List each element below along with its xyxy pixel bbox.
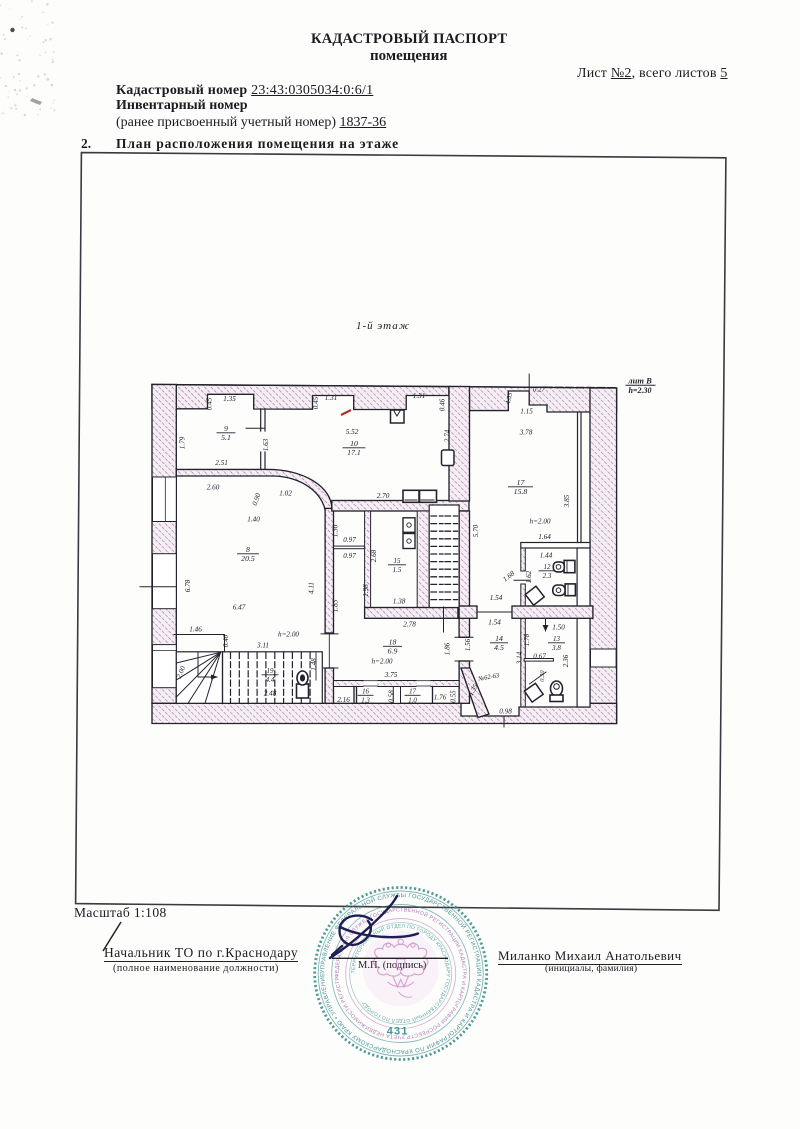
svg-text:h=2.00: h=2.00	[529, 518, 550, 526]
svg-text:0.40: 0.40	[222, 634, 230, 647]
svg-text:1.86: 1.86	[444, 642, 452, 655]
svg-text:2.48: 2.48	[264, 690, 277, 698]
svg-text:h=2.00: h=2.00	[278, 631, 299, 639]
svg-text:12: 12	[544, 563, 552, 571]
svg-text:1.79: 1.79	[179, 436, 187, 449]
svg-text:0.97: 0.97	[343, 552, 356, 560]
svg-text:8: 8	[246, 545, 250, 554]
svg-text:1.54: 1.54	[490, 594, 503, 602]
svg-text:2.68: 2.68	[370, 549, 378, 562]
svg-text:1.35: 1.35	[223, 395, 236, 403]
svg-text:2.60: 2.60	[207, 484, 220, 492]
svg-text:18: 18	[389, 638, 397, 647]
svg-text:17: 17	[517, 478, 526, 487]
svg-text:1.0: 1.0	[408, 698, 417, 705]
svg-text:ФЕДЕРАЛЬНАЯ СЛУЖБА ГОСУДАРСТВЕ: ФЕДЕРАЛЬНАЯ СЛУЖБА ГОСУДАРСТВЕННОЙ РЕГИС…	[0, 0, 467, 1040]
svg-text:1.50: 1.50	[552, 624, 565, 632]
svg-text:6.9: 6.9	[388, 647, 398, 656]
svg-text:1.62: 1.62	[525, 570, 533, 583]
svg-text:1.31: 1.31	[325, 394, 338, 402]
svg-text:1.40: 1.40	[247, 516, 260, 524]
svg-text:4.03: 4.03	[505, 392, 514, 406]
svg-text:1.38: 1.38	[393, 598, 406, 606]
svg-text:9: 9	[224, 424, 228, 433]
svg-text:4.11: 4.11	[308, 582, 316, 594]
svg-text:0.30: 0.30	[539, 670, 546, 682]
svg-text:1.76: 1.76	[434, 694, 447, 702]
svg-text:1.98: 1.98	[362, 584, 370, 597]
svg-text:1.56: 1.56	[464, 638, 472, 651]
svg-text:1.63: 1.63	[262, 438, 270, 451]
svg-text:3.11: 3.11	[256, 642, 269, 650]
svg-text:3.85: 3.85	[563, 494, 571, 508]
svg-text:1.64: 1.64	[538, 533, 551, 541]
svg-text:1.78: 1.78	[523, 633, 531, 646]
svg-text:1.31: 1.31	[413, 392, 426, 400]
svg-text:0.46: 0.46	[439, 398, 447, 411]
svg-text:№62-63: №62-63	[477, 672, 501, 683]
svg-text:3.75: 3.75	[384, 671, 398, 679]
svg-text:1.3: 1.3	[361, 698, 370, 705]
svg-text:17: 17	[409, 689, 416, 696]
svg-text:1.83: 1.83	[332, 599, 340, 612]
svg-text:2.36: 2.36	[562, 654, 570, 667]
svg-text:0.97: 0.97	[343, 536, 356, 544]
svg-text:0.45: 0.45	[312, 396, 320, 409]
svg-text:2.74: 2.74	[444, 429, 452, 442]
svg-text:3.14: 3.14	[516, 651, 524, 665]
svg-text:лит В: лит В	[627, 376, 652, 386]
svg-text:h=2.00: h=2.00	[371, 658, 392, 666]
svg-text:1.54: 1.54	[488, 619, 501, 627]
svg-text:1.5: 1.5	[393, 566, 402, 574]
svg-text:h=2.30: h=2.30	[628, 386, 651, 395]
svg-text:15: 15	[394, 557, 402, 565]
svg-text:10: 10	[350, 439, 358, 448]
svg-text:5.70: 5.70	[472, 524, 480, 537]
svg-text:5.52: 5.52	[346, 428, 359, 436]
svg-text:0.98: 0.98	[499, 708, 512, 716]
svg-text:2.70: 2.70	[377, 492, 390, 500]
svg-text:6.78: 6.78	[184, 579, 192, 592]
svg-text:1.68: 1.68	[501, 569, 516, 583]
svg-text:1.44: 1.44	[540, 552, 553, 560]
svg-text:2.16: 2.16	[337, 696, 350, 704]
svg-text:0.27: 0.27	[533, 387, 545, 394]
svg-text:17.1: 17.1	[347, 448, 361, 457]
svg-text:1.46: 1.46	[189, 626, 202, 634]
svg-text:13: 13	[553, 635, 561, 643]
svg-text:0.58: 0.58	[388, 690, 396, 703]
svg-text:4.4: 4.4	[266, 676, 275, 684]
svg-text:1.48: 1.48	[310, 658, 318, 671]
svg-text:0.55: 0.55	[450, 690, 458, 703]
svg-text:15.8: 15.8	[514, 487, 528, 496]
svg-text:431: 431	[387, 1026, 409, 1038]
svg-text:19: 19	[267, 667, 275, 675]
svg-text:3.78: 3.78	[519, 429, 533, 437]
svg-text:0.90: 0.90	[251, 492, 263, 507]
svg-text:4.5: 4.5	[494, 643, 504, 652]
svg-text:0.67: 0.67	[533, 653, 546, 661]
svg-text:0.45: 0.45	[206, 397, 214, 410]
svg-text:2.3: 2.3	[543, 572, 552, 580]
svg-text:6.47: 6.47	[233, 604, 246, 612]
svg-text:2.51: 2.51	[215, 459, 228, 467]
svg-text:14: 14	[495, 634, 503, 643]
svg-text:2.78: 2.78	[403, 621, 416, 629]
svg-text:1.15: 1.15	[520, 408, 533, 416]
svg-text:20.5: 20.5	[241, 554, 255, 563]
svg-text:1.02: 1.02	[279, 490, 292, 498]
svg-text:5.1: 5.1	[221, 433, 231, 442]
svg-text:3.8: 3.8	[551, 644, 561, 652]
svg-text:16: 16	[362, 689, 369, 696]
svg-text:1.30: 1.30	[332, 524, 340, 537]
